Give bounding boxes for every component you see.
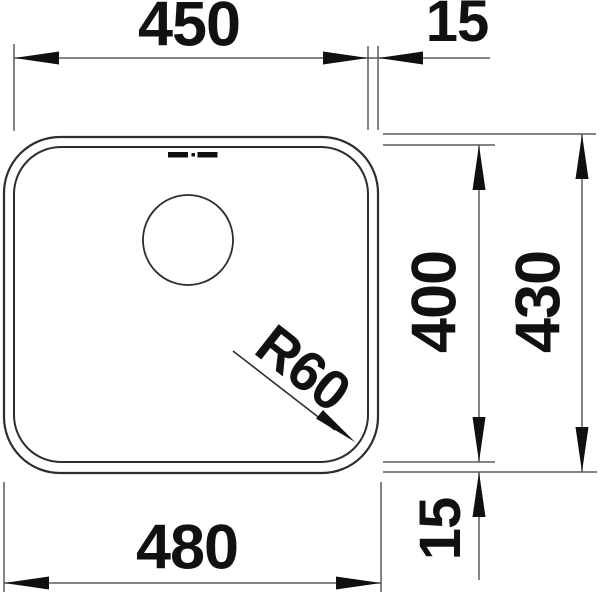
- arrowhead-bottom-left: [4, 577, 49, 590]
- dim-bottom-flange-label: 15: [412, 498, 470, 561]
- dim-top-width-label: 450: [138, 0, 240, 57]
- arrowhead-bottom-right: [336, 577, 381, 590]
- arrowhead-top-right: [323, 52, 368, 65]
- drain-hole: [143, 195, 233, 285]
- dim-bottom-width-label: 480: [136, 517, 238, 580]
- arrowhead-outer-height-bottom: [576, 427, 589, 472]
- overflow-mark-left: [168, 152, 188, 158]
- dim-inner-height-label: 400: [404, 251, 467, 353]
- arrowhead-top-left: [14, 52, 59, 65]
- arrowhead-inner-height-top: [473, 145, 486, 190]
- dim-outer-height-label: 430: [508, 251, 571, 353]
- arrowhead-bottom-flange: [473, 472, 486, 517]
- overflow-mark-right: [198, 152, 218, 158]
- arrowhead-outer-height-top: [576, 134, 589, 179]
- dim-top-flange-label: 15: [426, 0, 489, 51]
- sink-dimension-drawing: 450 15 400 430 480 15 R60: [0, 0, 600, 600]
- arrowhead-top-flange: [378, 52, 423, 65]
- arrowhead-inner-height-bottom: [473, 417, 486, 462]
- overflow-mark-dot: [192, 153, 196, 157]
